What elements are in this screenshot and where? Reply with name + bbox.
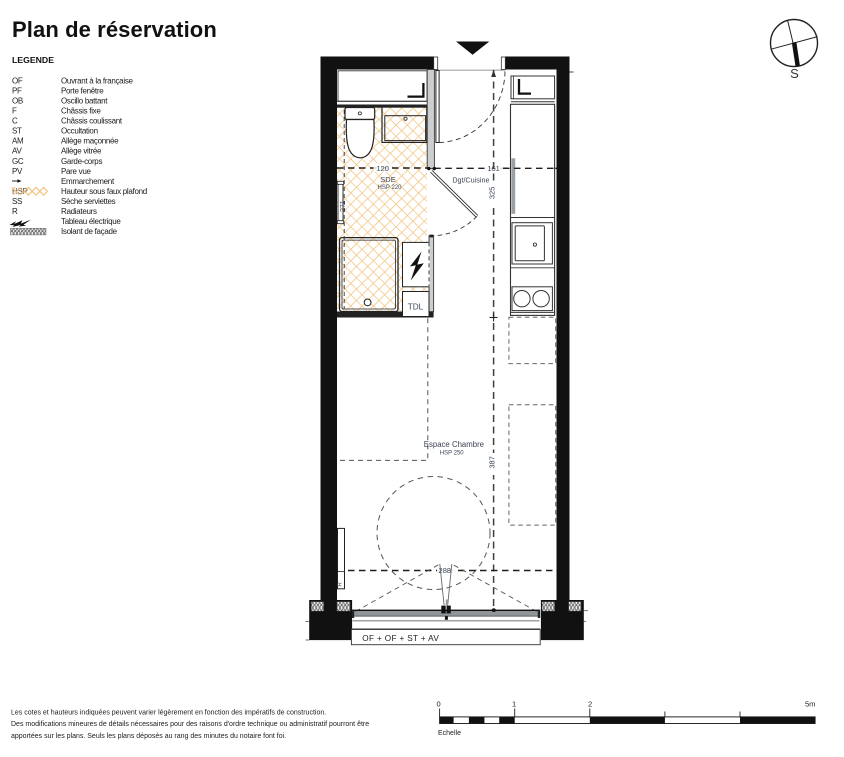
svg-text:S: S [790,66,799,81]
svg-text:2: 2 [588,700,592,709]
svg-text:PF: PF [12,86,22,95]
svg-text:GC: GC [12,157,24,166]
svg-text:Emmarchement: Emmarchement [61,177,115,186]
svg-text:Ouvrant à la française: Ouvrant à la française [61,76,134,85]
svg-text:Les cotes et hauteurs indiquée: Les cotes et hauteurs indiquées peuvent … [11,709,326,716]
svg-text:HSP 220: HSP 220 [378,185,403,191]
svg-text:1: 1 [512,700,516,709]
svg-text:Garde-corps: Garde-corps [61,157,102,166]
svg-text:Tableau électrique: Tableau électrique [61,217,121,226]
svg-text:Radiateurs: Radiateurs [61,207,97,216]
svg-text:PV: PV [12,167,23,176]
svg-text:5m: 5m [805,700,815,709]
svg-text:271: 271 [340,200,347,212]
svg-text:Porte fenêtre: Porte fenêtre [61,86,104,95]
svg-text:387: 387 [487,456,496,469]
svg-text:Isolant de façade: Isolant de façade [61,227,118,236]
svg-text:Dgt/Cuisine: Dgt/Cuisine [452,175,489,184]
svg-text:325: 325 [487,187,496,200]
svg-text:0: 0 [437,700,441,709]
svg-text:OB: OB [12,96,23,105]
svg-text:Allège maçonnée: Allège maçonnée [61,137,119,146]
svg-text:Châssis coulissant: Châssis coulissant [61,117,123,126]
svg-text:AM: AM [12,137,24,146]
svg-text:120: 120 [376,164,389,173]
svg-text:R: R [12,207,18,216]
svg-text:AV: AV [12,147,22,156]
svg-text:C: C [12,117,18,126]
svg-text:OF + OF + ST + AV: OF + OF + ST + AV [362,634,439,643]
svg-text:Hauteur sous faux plafond: Hauteur sous faux plafond [61,187,147,196]
svg-text:HSP 250: HSP 250 [440,451,465,457]
svg-text:Espace Chambre: Espace Chambre [424,440,484,449]
svg-text:R: R [337,582,343,587]
svg-text:Des modifications mineures de: Des modifications mineures de détails né… [11,721,369,728]
svg-text:Châssis fixe: Châssis fixe [61,107,101,116]
svg-text:F: F [12,107,17,116]
svg-text:Sèche serviettes: Sèche serviettes [61,197,116,206]
svg-text:Plan de réservation: Plan de réservation [12,17,217,42]
svg-text:Pare vue: Pare vue [61,167,91,176]
svg-text:TDL: TDL [408,303,424,312]
svg-text:ST: ST [12,127,22,136]
svg-text:SDE: SDE [380,175,395,184]
svg-text:Occultation: Occultation [61,127,98,136]
svg-text:Allège vitrée: Allège vitrée [61,147,102,156]
svg-text:Oscillo battant: Oscillo battant [61,96,108,105]
svg-text:apportées sur les plans. Seuls: apportées sur les plans. Seuls les plans… [11,733,286,740]
svg-text:LEGENDE: LEGENDE [12,55,54,65]
svg-text:SS: SS [12,197,22,206]
svg-text:OF: OF [12,76,23,85]
svg-text:Echelle: Echelle [438,730,461,737]
